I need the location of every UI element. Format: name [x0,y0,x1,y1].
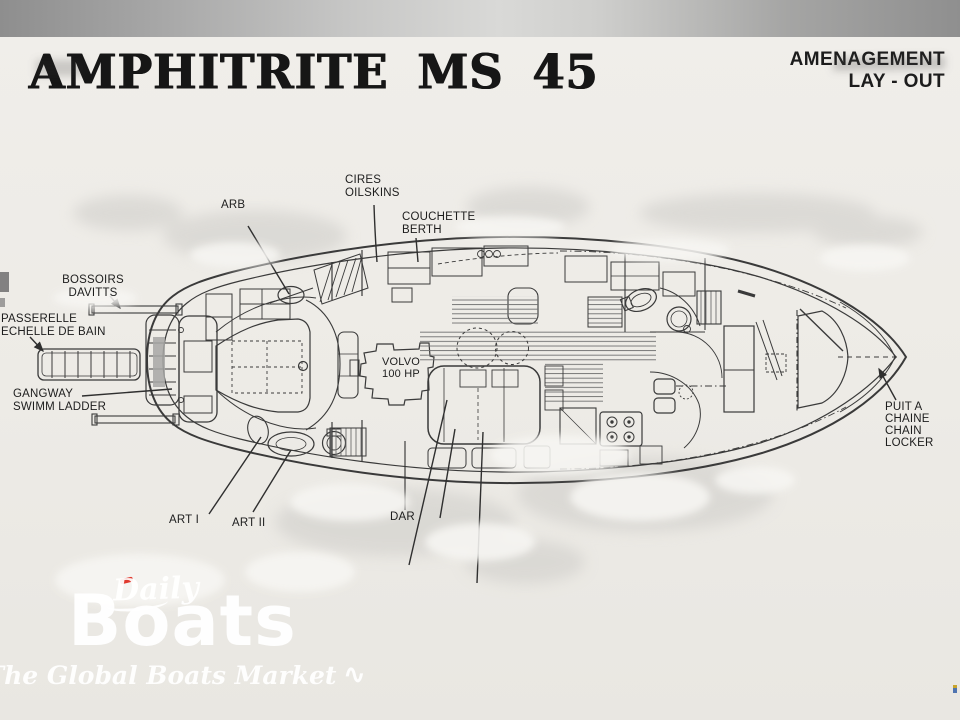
label-art-2: ART II [232,517,265,530]
watermark-brand-main: Boats [68,586,297,656]
label-engine-volvo: VOLVO 100 HP [376,356,426,381]
davit-lower [92,414,179,425]
scan-artifacts-white [53,216,910,606]
salon-furniture [420,246,656,468]
scan-color-speck [953,685,957,693]
scan-artifacts-gray [73,187,923,584]
label-art-1: ART I [169,514,199,527]
scanned-brochure-page: AMPHITRITE MS 45 AMENAGEMENT LAY - OUT A… [0,0,960,720]
gangway-drawing [38,349,140,380]
corner-label-layout: LAY - OUT [790,71,945,93]
label-couchette-berth: COUCHETTE BERTH [402,211,475,237]
flourish-right-icon: ∿ [343,660,363,690]
galley-furniture [545,366,700,466]
watermark-tagline: ∿ The Global Boats Market ∿ [6,660,316,690]
label-passerelle-echelle: PASSERELLE ECHELLE DE BAIN [1,313,106,339]
page-edge-marks [0,272,9,307]
label-bossoirs-davitts: BOSSOIRS DAVITTS [55,274,131,300]
swim-platform [146,315,217,422]
label-dar: DAR [390,511,415,524]
head-furniture [565,254,755,386]
fwd-cabin-furniture [724,309,848,412]
corner-label: AMENAGEMENT LAY - OUT [790,49,945,92]
label-chain-locker: PUIT A CHAINE CHAIN LOCKER [885,401,934,449]
page-title: AMPHITRITE MS 45 [29,44,599,100]
label-cires-oilskins: CIRES OILSKINS [345,174,400,200]
hull-outline [147,237,906,483]
scan-edge-top-bar [0,0,960,37]
watermark-tagline-text: The Global Boats Market [0,661,336,690]
corner-label-amenagement: AMENAGEMENT [790,49,945,71]
leader-lines [30,205,896,583]
label-gangway-ladder: GANGWAY SWIMM LADDER [13,388,106,414]
label-arb: ARB [221,199,245,212]
